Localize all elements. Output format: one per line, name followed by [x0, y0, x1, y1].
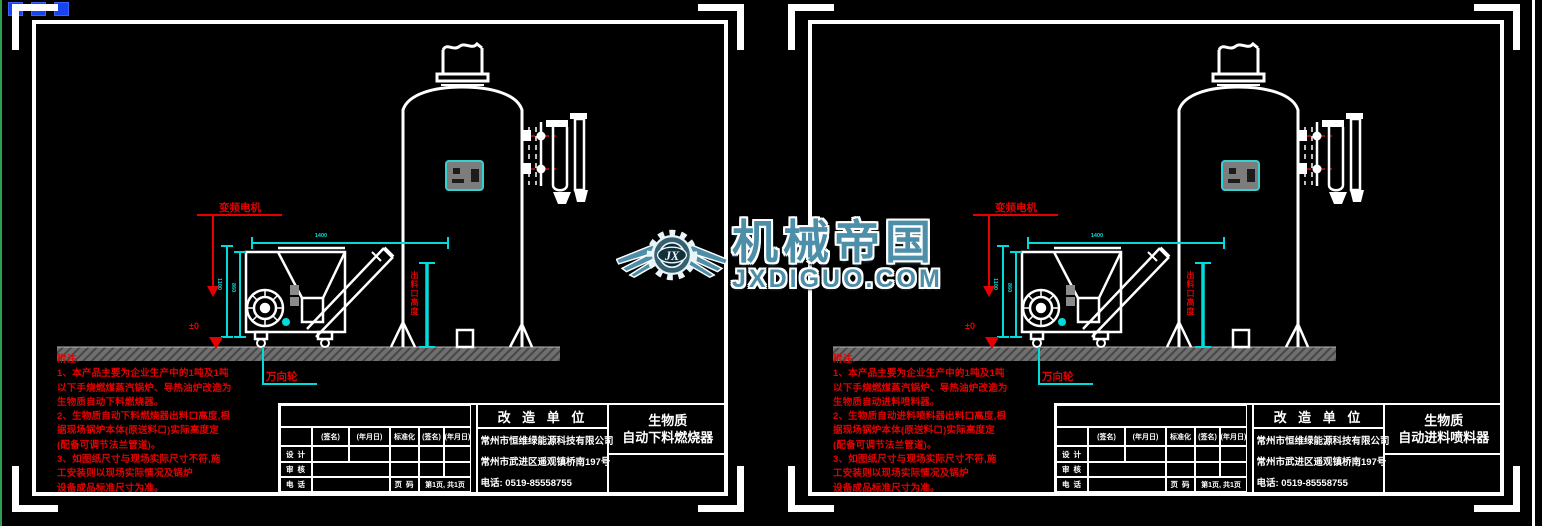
note-line: 据现场锅炉本体(原送料口)实际高度定	[833, 424, 1071, 438]
table-cell-empty	[444, 446, 471, 462]
motor-label: 变频电机	[972, 200, 1060, 215]
table-cell-empty	[1088, 446, 1125, 462]
note-line: 3、如图纸尺寸与现场实际尺寸不符,施	[57, 453, 295, 467]
table-header: 标准化	[1166, 427, 1195, 446]
row-label-design: 设 计	[1056, 446, 1088, 462]
table-cell-empty	[1056, 427, 1088, 446]
table-header: (签名)	[1195, 427, 1220, 446]
unit-box: 改 造 单 位 常州市恒维绿能源科技有限公司 常州市武进区遥观镇桥南197号 电…	[1252, 405, 1383, 494]
row-label-review: 审 核	[280, 462, 312, 477]
table-cell-empty	[312, 446, 349, 462]
note-line: 生物质自动进料喷料器。	[833, 396, 1071, 410]
product-box: 生物质 自动进料喷料器	[1383, 405, 1502, 494]
signature-table: (签名) (年月日) 标准化 (签名) (年月日) 设 计 审 核 电 话 页 …	[1056, 405, 1252, 494]
row-label-design: 设 计	[280, 446, 312, 462]
table-cell-empty	[1166, 462, 1195, 477]
note-line: 设备成品标准尺寸为准。	[833, 482, 1071, 496]
table-cell-empty	[1056, 405, 1247, 427]
notes-block: 附注: 1、本产品主要为企业生产中的1吨及1吨 以下手烧燃煤蒸汽锅炉、导热油炉改…	[833, 353, 1071, 496]
table-header: (年月日)	[1220, 427, 1247, 446]
table-cell-empty	[312, 462, 390, 477]
motor-label: 变频电机	[196, 200, 284, 215]
unit-header: 改 造 单 位	[1254, 405, 1383, 429]
row-label-review: 审 核	[1056, 462, 1088, 477]
company-name: 常州市恒维绿能源科技有限公司	[1256, 431, 1383, 452]
signature-table: (签名) (年月日) 标准化 (签名) (年月日) 设 计 审 核 电 话 页 …	[280, 405, 476, 494]
table-cell-empty	[1088, 462, 1166, 477]
product-blank-cell	[1385, 455, 1502, 494]
watermark-brand: 机械帝国	[732, 218, 943, 266]
page-label: 页 码	[390, 477, 419, 492]
company-info: 常州市恒维绿能源科技有限公司 常州市武进区遥观镇桥南197号 电话: 0519-…	[1254, 429, 1383, 494]
note-line: 设备成品标准尺寸为准。	[57, 482, 295, 496]
canvas-left-edge-line	[0, 0, 2, 526]
dimension-width: 1400	[291, 233, 351, 239]
title-block: (签名) (年月日) 标准化 (签名) (年月日) 设 计 审 核 电 话 页 …	[1054, 403, 1504, 496]
note-line: 1、本产品主要为企业生产中的1吨及1吨	[833, 367, 1071, 381]
svg-text:JX: JX	[664, 249, 680, 263]
table-cell-empty	[1195, 446, 1220, 462]
row-label-phone: 电 话	[280, 477, 312, 492]
note-line: 以下手烧燃煤蒸汽锅炉、导热油炉改造为	[57, 382, 295, 396]
winged-gear-logo-icon: JX	[616, 215, 728, 295]
outlet-height-label: 出料口高度	[1185, 271, 1196, 345]
note-line: 附注:	[833, 353, 1071, 367]
note-line: (配备可调节法兰管道)。	[833, 439, 1071, 453]
canvas-right-edge-line	[1532, 0, 1535, 526]
table-header: (年月日)	[444, 427, 471, 446]
company-name: 常州市恒维绿能源科技有限公司	[480, 431, 607, 452]
table-cell-empty	[419, 462, 444, 477]
table-header: (签名)	[419, 427, 444, 446]
product-name-line: 自动下料燃烧器	[622, 429, 713, 446]
note-line: 据现场锅炉本体(原送料口)实际高度定	[57, 424, 295, 438]
product-blank-cell	[609, 455, 726, 494]
dimension-height-outer: 1100	[992, 278, 998, 290]
table-cell-empty	[349, 446, 390, 462]
notes-block: 附注: 1、本产品主要为企业生产中的1吨及1吨 以下手烧燃煤蒸汽锅炉、导热油炉改…	[57, 353, 295, 496]
dimension-height-inner: 860	[230, 283, 236, 292]
row-label-phone: 电 话	[1056, 477, 1088, 492]
product-box: 生物质 自动下料燃烧器	[607, 405, 726, 494]
table-cell-empty	[1088, 477, 1166, 492]
table-cell-empty	[1166, 446, 1195, 462]
note-line: 附注:	[57, 353, 295, 367]
page-value: 第1页, 共1页	[1195, 477, 1247, 492]
company-address: 常州市武进区遥观镇桥南197号	[480, 452, 607, 473]
note-line: 工安装则以现场实际情况及锅炉	[57, 467, 295, 481]
table-cell-empty	[280, 427, 312, 446]
company-phone: 电话: 0519-85558755	[480, 473, 607, 494]
table-cell-empty	[1220, 446, 1247, 462]
table-header: 标准化	[390, 427, 419, 446]
company-address: 常州市武进区遥观镇桥南197号	[1256, 452, 1383, 473]
product-name-line: 自动进料喷料器	[1398, 429, 1489, 446]
note-line: 1、本产品主要为企业生产中的1吨及1吨	[57, 367, 295, 381]
note-line: 以下手烧燃煤蒸汽锅炉、导热油炉改造为	[833, 382, 1071, 396]
page-label: 页 码	[1166, 477, 1195, 492]
table-header: (签名)	[312, 427, 349, 446]
table-cell-empty	[1220, 462, 1247, 477]
note-line: 2、生物质自动进料喷料器出料口高度,根	[833, 410, 1071, 424]
note-line: 工安装则以现场实际情况及锅炉	[833, 467, 1071, 481]
product-name-line: 生物质	[1424, 412, 1463, 429]
outlet-height-label: 出料口高度	[409, 271, 420, 345]
table-header: (签名)	[1088, 427, 1125, 446]
table-cell-empty	[280, 405, 471, 427]
dimension-width: 1400	[1067, 233, 1127, 239]
table-cell-empty	[1195, 462, 1220, 477]
ground-level-label: ±0	[189, 321, 199, 331]
company-info: 常州市恒维绿能源科技有限公司 常州市武进区遥观镇桥南197号 电话: 0519-…	[478, 429, 607, 494]
table-header: (年月日)	[1125, 427, 1166, 446]
ground-level-label: ±0	[965, 321, 975, 331]
product-name: 生物质 自动下料燃烧器	[609, 405, 726, 455]
table-cell-empty	[312, 477, 390, 492]
note-line: 3、如图纸尺寸与现场实际尺寸不符,施	[833, 453, 1071, 467]
watermark: JX 机械帝国 JXDIGUO.COM	[616, 196, 946, 314]
table-cell-empty	[1125, 446, 1166, 462]
note-line: 生物质自动下料燃烧器。	[57, 396, 295, 410]
dimension-height-outer: 1100	[216, 278, 222, 290]
table-cell-empty	[444, 462, 471, 477]
company-phone: 电话: 0519-85558755	[1256, 473, 1383, 494]
title-block: (签名) (年月日) 标准化 (签名) (年月日) 设 计 审 核 电 话 页 …	[278, 403, 728, 496]
product-name-line: 生物质	[648, 412, 687, 429]
table-cell-empty	[390, 446, 419, 462]
note-line: (配备可调节法兰管道)。	[57, 439, 295, 453]
watermark-domain: JXDIGUO.COM	[732, 266, 943, 292]
product-name: 生物质 自动进料喷料器	[1385, 405, 1502, 455]
table-cell-empty	[390, 462, 419, 477]
dimension-height-inner: 860	[1006, 283, 1012, 292]
table-header: (年月日)	[349, 427, 390, 446]
table-cell-empty	[419, 446, 444, 462]
page-value: 第1页, 共1页	[419, 477, 471, 492]
unit-header: 改 造 单 位	[478, 405, 607, 429]
note-line: 2、生物质自动下料燃烧器出料口高度,根	[57, 410, 295, 424]
unit-box: 改 造 单 位 常州市恒维绿能源科技有限公司 常州市武进区遥观镇桥南197号 电…	[476, 405, 607, 494]
